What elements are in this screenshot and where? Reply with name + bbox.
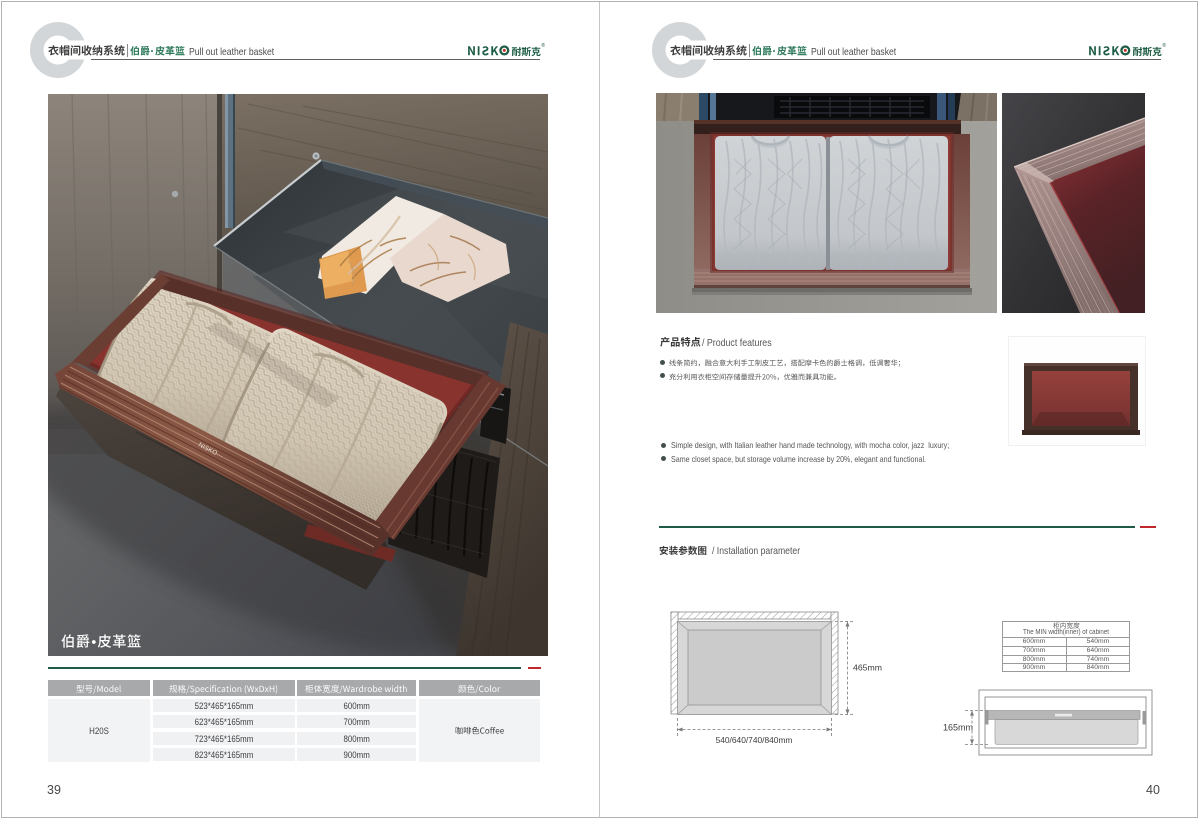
svg-text:®: ® — [541, 42, 545, 49]
svg-text:465mm: 465mm — [853, 663, 882, 673]
svg-text:®: ® — [1162, 42, 1166, 49]
svg-text:540/640/740/840mm: 540/640/740/840mm — [716, 735, 793, 745]
svg-text:165mm: 165mm — [943, 723, 973, 733]
